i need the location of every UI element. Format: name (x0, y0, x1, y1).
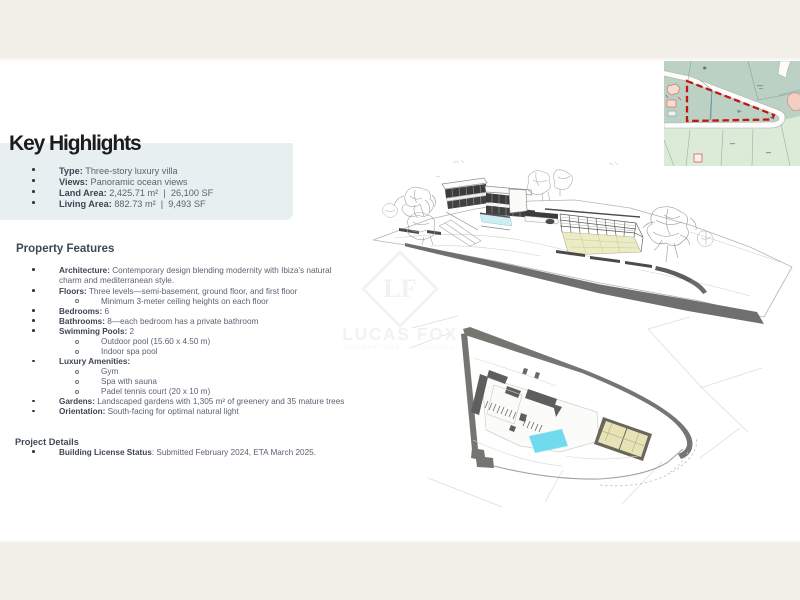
svg-text:LF: LF (383, 274, 416, 303)
svg-text:LUCAS FOX: LUCAS FOX (342, 324, 458, 344)
svg-text:INTERNATIONAL PROPERTIES: INTERNATIONAL PROPERTIES (344, 345, 455, 351)
